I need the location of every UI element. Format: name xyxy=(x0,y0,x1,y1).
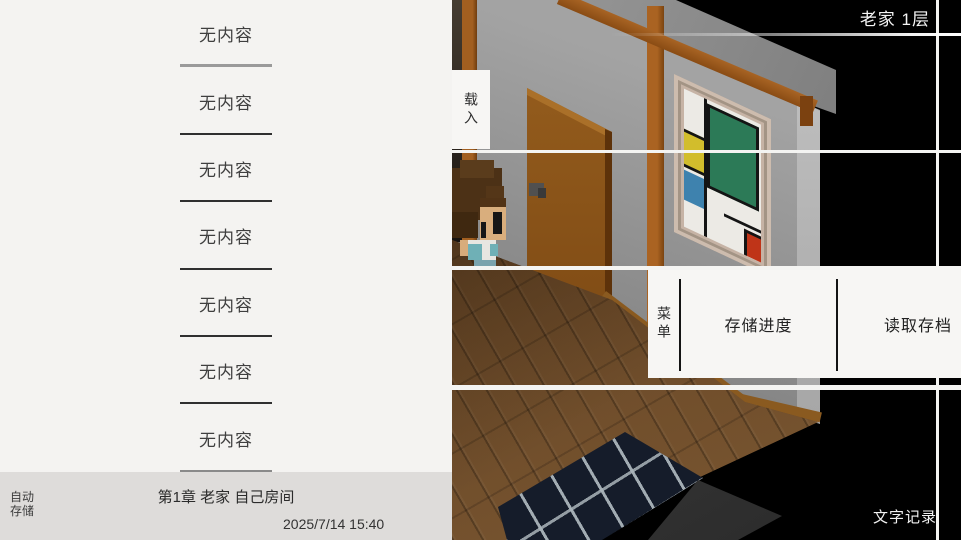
menu-divider xyxy=(836,279,838,371)
painting-blue-block xyxy=(684,170,704,209)
save-slot-label: 无内容 xyxy=(199,21,253,46)
character-eye xyxy=(493,212,502,234)
character-hair xyxy=(452,212,478,238)
save-slot-label: 无内容 xyxy=(199,291,253,316)
save-slot-label: 无内容 xyxy=(199,358,253,383)
painting-green-block xyxy=(707,103,759,211)
game-save-screen: 老家 1层 载入 菜单 存储进度 读取存档 文字记录 无内容无内容无内容无内容无… xyxy=(0,0,961,540)
save-slot[interactable]: 无内容 xyxy=(0,67,452,134)
location-label: 老家 1层 xyxy=(860,5,930,30)
save-slot-label: 无内容 xyxy=(199,89,253,114)
save-slot[interactable]: 无内容 xyxy=(0,0,452,67)
menu-button-label: 菜单 xyxy=(654,306,674,342)
save-slot-panel: 无内容无内容无内容无内容无内容无内容无内容 自动 存储 第1章 老家 自己房间 … xyxy=(0,0,452,540)
hud-gradient-line xyxy=(610,33,961,36)
save-progress-button[interactable]: 存储进度 xyxy=(681,270,836,378)
painting-red-block xyxy=(744,229,761,263)
door-handle-knob xyxy=(538,188,546,198)
autosave-title: 第1章 老家 自己房间 xyxy=(0,486,452,507)
load-button-label: 载入 xyxy=(461,92,481,128)
save-slot[interactable]: 无内容 xyxy=(0,202,452,269)
character-shirt xyxy=(468,244,482,260)
hud-grid-line-top xyxy=(452,150,961,153)
save-slot-list: 无内容无内容无内容无内容无内容无内容无内容 xyxy=(0,0,452,472)
save-slot[interactable]: 无内容 xyxy=(0,337,452,404)
autosave-datetime: 2025/7/14 15:40 xyxy=(283,516,384,532)
painting-grid-line xyxy=(724,213,761,233)
character-shirt xyxy=(490,244,498,256)
save-slot[interactable]: 无内容 xyxy=(0,135,452,202)
wood-beam-cap xyxy=(800,96,813,126)
menu-bar: 菜单 存储进度 读取存档 xyxy=(648,270,961,378)
text-log-button[interactable]: 文字记录 xyxy=(873,506,937,527)
character-eye xyxy=(481,222,486,238)
menu-button[interactable]: 菜单 xyxy=(648,270,680,378)
character-fringe xyxy=(480,198,506,207)
load-save-button[interactable]: 读取存档 xyxy=(848,270,961,378)
hud-grid-line-bottom xyxy=(452,385,961,390)
painting-canvas xyxy=(684,89,761,263)
save-slot-label: 无内容 xyxy=(199,156,253,181)
autosave-entry[interactable]: 自动 存储 第1章 老家 自己房间 2025/7/14 15:40 xyxy=(0,472,452,540)
character-hair xyxy=(460,160,494,178)
save-slot[interactable]: 无内容 xyxy=(0,270,452,337)
save-slot[interactable]: 无内容 xyxy=(0,404,452,471)
save-slot-label: 无内容 xyxy=(199,426,253,451)
save-slot-label: 无内容 xyxy=(199,223,253,248)
load-button[interactable]: 载入 xyxy=(452,70,490,149)
player-character xyxy=(452,160,512,270)
